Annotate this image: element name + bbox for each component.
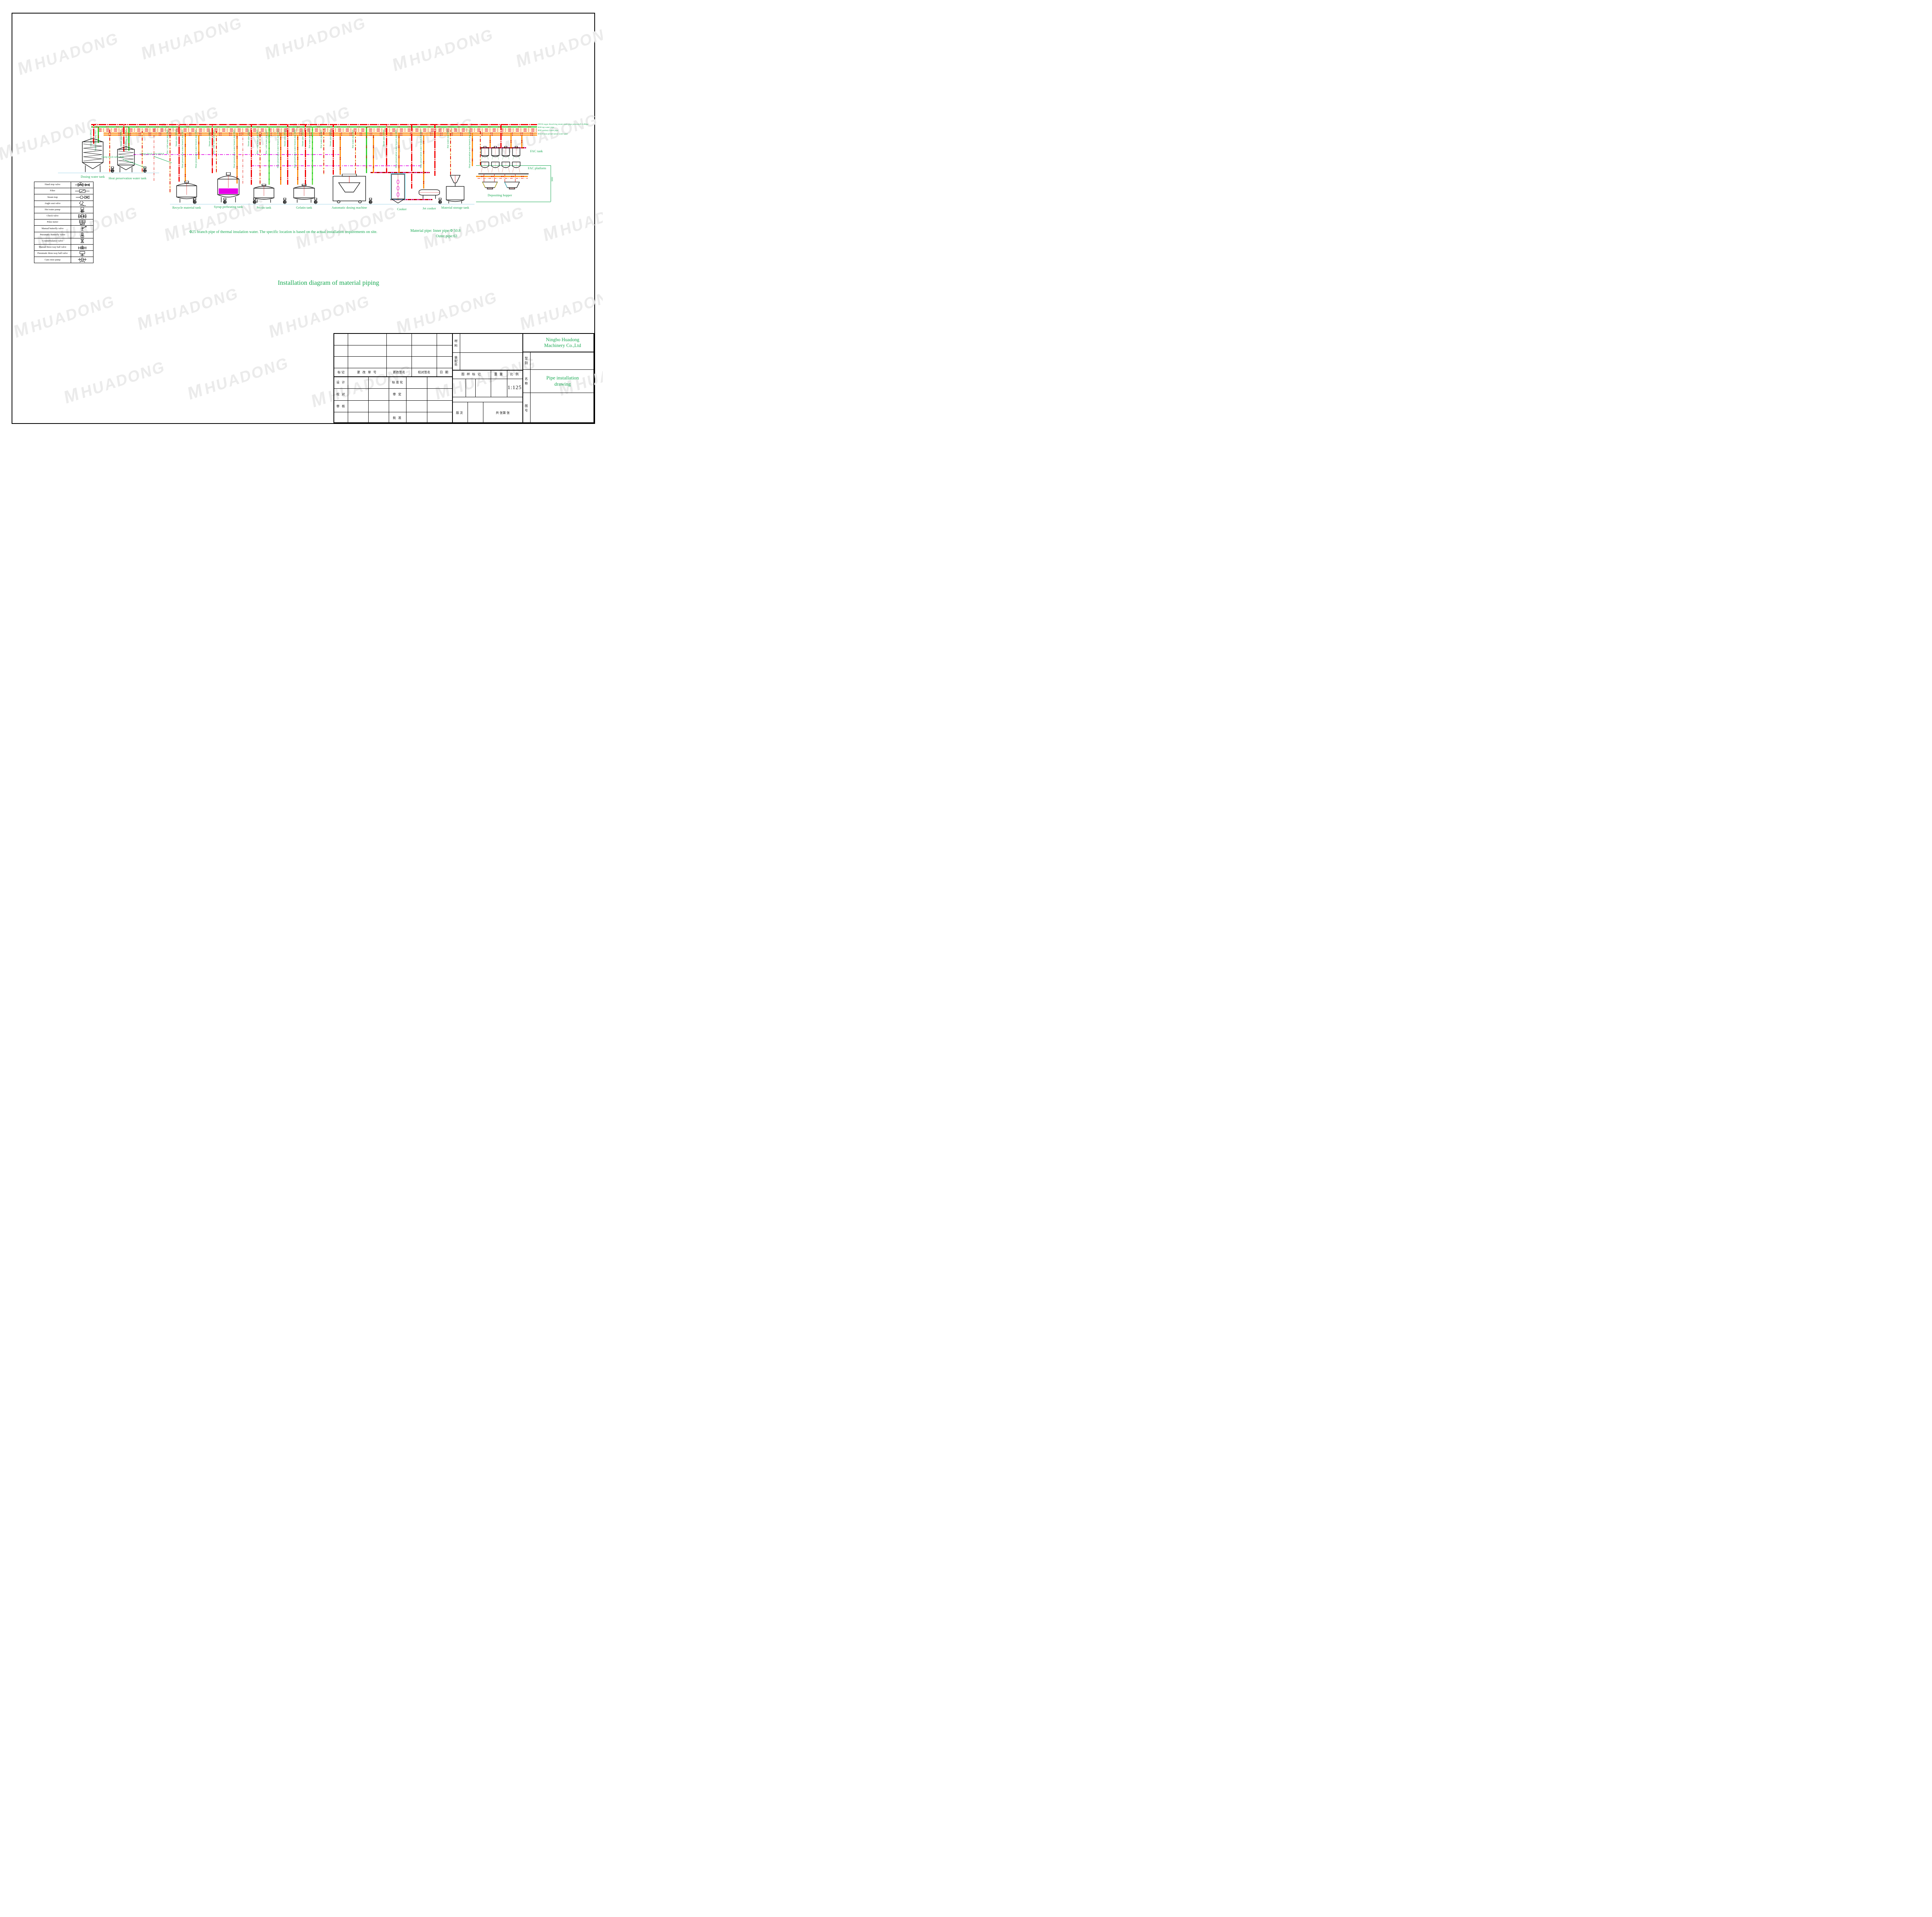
hot-water-pump-icon [71, 207, 93, 213]
tb-line [522, 393, 595, 393]
pipe-orange-vertical [510, 133, 512, 148]
pneumatic-butterfly-valve-icon [71, 232, 93, 238]
pipe-ltgreen-vertical [312, 127, 313, 185]
legend-row: Pneumatic three-way ball valve [34, 251, 93, 257]
manual-butterfly-valve-icon [71, 226, 93, 231]
pipe-yellow-vertical [355, 131, 356, 175]
cooker-label: Cooker [397, 207, 406, 211]
tb-weight: 重 量 [491, 370, 507, 379]
tb-material: 材 料 [452, 334, 460, 352]
tb-drawing-name-line2: drawing [554, 381, 571, 387]
legend-row: Pulse meter [34, 219, 93, 226]
pipe-red-vertical [434, 124, 435, 176]
pump-9-glyph [437, 198, 443, 204]
pump-5 [252, 198, 257, 204]
pump-1-glyph [110, 167, 115, 173]
material-pipe-note-2: Outer pipe:63 [436, 234, 457, 238]
pipe-orange-vertical [472, 133, 473, 166]
fac-bowl-2-glyph [491, 162, 500, 173]
tb-mark: 标 记 [334, 368, 348, 376]
main-pipe-labels: DN50 sugar dissolving steam main pipe pr… [538, 123, 588, 136]
tb-change-sign: 更改签名 [386, 368, 412, 376]
pipe-yellow-vertical [260, 131, 260, 185]
pipe-yellow [97, 129, 537, 129]
pump-6-glyph [282, 198, 287, 204]
pump-1 [110, 167, 115, 173]
drawing-sheet: MHUADONGMHUADONGMHUADONGMHUADONGMHUADONG… [0, 0, 603, 427]
pneumatic-three-way-ball-valve-icon [74, 251, 91, 256]
huadong-logo-icon: M [267, 317, 286, 342]
legend-row: Check valve [34, 213, 93, 219]
fac-tank-1-glyph [480, 146, 490, 160]
pump-7-glyph [313, 198, 318, 204]
pneumatic-three-way-ball-valve-icon [71, 251, 93, 257]
pipe-orange-vertical [423, 135, 424, 189]
fac-bowl-1-glyph [480, 162, 490, 173]
counterbalance-valve-icon [71, 238, 93, 244]
legend-row: Counterbalance valve [34, 238, 93, 245]
pipe-orange-vertical [340, 133, 341, 175]
tb-change-no: 更 改 单 号 [348, 368, 386, 376]
pipe-orange-vertical [398, 133, 400, 173]
tb-line [460, 334, 460, 370]
pipe-greenline-vertical [551, 165, 551, 202]
check-valve-icon [71, 213, 93, 219]
pump-3 [192, 198, 197, 204]
huadong-logo-icon: M [542, 221, 560, 245]
pipe-reddash-vertical [515, 174, 515, 182]
huadong-logo-icon: M [391, 51, 410, 75]
pipe-reddash-vertical [484, 174, 484, 182]
hot-water-pump-icon [74, 208, 91, 213]
vertical-pipe-label: Heat preservation water branch pipe Φ25 [294, 130, 297, 168]
pectin-tank-label: Pectin tank [257, 206, 271, 209]
vertical-pipe-label: Hot water pipe Φ25 [309, 130, 311, 148]
legend-row: Manual three-way ball valve [34, 245, 93, 251]
cooker-glyph [387, 172, 409, 204]
legend-label: Pneumatic Butterfly Valve [34, 232, 71, 238]
steam-trap-icon [71, 194, 93, 200]
pipe-green-vertical [366, 127, 367, 173]
pipe-yellow-vertical [170, 129, 170, 193]
vertical-pipe-label: Hot / cold water pipe Φ25 [257, 130, 259, 154]
angle-seat-valve-icon [74, 201, 91, 206]
legend-label: Check valve [34, 213, 71, 219]
pipe-red-vertical [251, 124, 252, 185]
tb-line [522, 352, 595, 352]
vertical-pipe-label: Hot / cold water pipe Φ25 [265, 130, 268, 154]
pipe-orange-vertical [198, 135, 199, 159]
main-pipe-label: Φ38 tap water pipe [538, 126, 588, 129]
vertical-pipe-label: Steam pipe DN20 [248, 130, 250, 146]
huadong-logo-icon: M [16, 54, 35, 79]
tb-date: 日 期 [437, 368, 452, 376]
legend-label: Steam trap [34, 194, 71, 200]
legend-label: Counterbalance valve [34, 238, 71, 244]
tb-line [468, 402, 468, 424]
dosing-water-tank-label: Dosing water tank [81, 175, 105, 179]
tb-review: 审 核 [334, 400, 348, 412]
filter-icon [71, 188, 93, 194]
pipe-red-vertical [287, 124, 288, 185]
fac-tank-3-glyph [501, 146, 510, 160]
pipe-ltgreen-vertical [269, 127, 270, 185]
legend-row: Cam rotor pump [34, 257, 93, 263]
fac-tank-label: FAC tank [530, 149, 543, 153]
tb-line [334, 400, 452, 401]
fac-tank-2 [491, 146, 500, 160]
vertical-pipe-label: Hot / cold water pipe Φ25 [167, 130, 169, 154]
legend-label: Pulse meter [34, 219, 71, 225]
depositing-hopper-label: Depositing hopper [488, 193, 512, 197]
pipe-orange-vertical [280, 133, 281, 185]
pump-3-glyph [192, 198, 197, 204]
pipe-orange-vertical [373, 135, 374, 173]
material-pipe-note-1: Material pipe: Inner pipe:Φ 50.8 [410, 229, 461, 233]
huadong-logo-icon: M [140, 39, 158, 64]
main-pipe-label: DN50 sugar dissolving steam main pipe pr… [538, 123, 588, 126]
clamp-check-valve-38-label: Clamp check valve Φ38 [101, 156, 124, 158]
pipe-orange-vertical [185, 133, 186, 182]
pipe-yellow-vertical [216, 131, 217, 173]
fac-tank-2-glyph [491, 146, 500, 160]
fac-bowl-2 [491, 162, 500, 173]
tb-assembly: 装配处 [452, 352, 460, 370]
heat-preservation-water-tank-label: Heat preservation water tank [109, 176, 146, 180]
pipe-reddash [478, 178, 528, 179]
pipe-orange-vertical [521, 135, 522, 148]
legend-row: Hot water pump [34, 207, 93, 213]
huadong-logo-icon: M [372, 139, 390, 164]
fac-platform-label: FAC platform [528, 166, 546, 170]
automatic-dosing-machine-label: Automatic dosing machine [332, 206, 367, 209]
syrup-preheating-tank-glyph [216, 172, 241, 203]
material-storage-tank-label: Material storage tank [441, 206, 469, 209]
pipe-floor [170, 204, 474, 204]
legend-label: Pneumatic three-way ball valve [34, 251, 71, 257]
pump-8-glyph [368, 198, 373, 204]
legend-table: Hand stop valveFilterSteam trapAngle sea… [34, 182, 94, 263]
fac-tank-1 [480, 146, 490, 160]
tb-model: 型 别 [522, 352, 530, 369]
syrup-preheating-tank-label: Syrup preheating tank [214, 205, 243, 209]
legend-row: Filter [34, 188, 93, 194]
pipe-red-vertical [179, 124, 180, 182]
pipe-greenline [476, 202, 551, 202]
hand-stop-valve-icon [71, 182, 93, 188]
legend-label: Filter [34, 188, 71, 194]
vertical-pipe-label: Steam pipe DN25 [284, 130, 287, 146]
tb-line [406, 376, 406, 424]
huadong-logo-icon: M [519, 310, 537, 334]
tb-standardization: 标 准 化 [389, 376, 406, 388]
title-block: 标 记 更 改 单 号 更改签名 校对签名 日 期 设 计 校 对 审 核 标 … [333, 333, 594, 423]
huadong-logo-icon: M [136, 310, 155, 334]
manual-three-way-ball-valve-icon [74, 245, 91, 250]
hand-stop-valve-icon [74, 182, 91, 187]
tb-design: 设 计 [334, 376, 348, 388]
pipe-black [478, 173, 529, 174]
tb-drawing-name: Pipe installation drawing [530, 369, 595, 393]
manual-three-way-ball-valve-icon [71, 245, 93, 250]
tb-line [334, 356, 452, 357]
legend-row: Hand stop valve [34, 182, 93, 188]
cam-rotor-pump-icon [71, 257, 93, 263]
pump-9 [437, 198, 443, 204]
vertical-pipe-label: Hot / cold water pipe Φ25 [213, 130, 216, 154]
manual-butterfly-valve-icon [74, 226, 91, 231]
huadong-logo-icon: M [310, 387, 328, 412]
pulse-meter-icon [71, 219, 93, 225]
main-pipe-label: Φ50.8 heat preservation water pipe [538, 133, 588, 136]
heat-preservation-water-tank [116, 146, 136, 173]
huadong-logo-icon: M [186, 379, 205, 404]
pulse-meter-icon [74, 220, 91, 225]
pipe-yellow-vertical [450, 129, 451, 176]
depositing-hopper-1-glyph [481, 182, 498, 192]
tb-line [427, 376, 427, 424]
tb-line [452, 397, 522, 397]
angle-seat-valve-icon [71, 201, 93, 207]
huadong-logo-icon: M [63, 383, 81, 408]
tb-line [452, 352, 522, 353]
vertical-pipe-label: Steam pipe DN25 [209, 130, 211, 146]
automatic-dosing-machine [332, 174, 367, 203]
huadong-logo-icon: M [515, 47, 533, 71]
fac-bowl-4 [512, 162, 521, 173]
tb-line [466, 379, 466, 397]
main-pipe-label: Φ38 sanitary water pipe [538, 129, 588, 132]
vertical-pipe-label: Hot water pipe Φ25 [320, 130, 323, 148]
pipe-reddash-vertical [243, 129, 243, 184]
branch-pipe-note: Φ25 branch pipe of thermal insulation wa… [189, 230, 377, 234]
vertical-pipe-label: Steam pipe DN40 [383, 130, 386, 146]
tb-line [368, 376, 369, 424]
tb-edition: 版次 [452, 402, 468, 424]
pneumatic-butterfly-valve-icon [74, 233, 91, 238]
pump-5-glyph [252, 198, 257, 204]
counterbalance-valve-icon [74, 239, 91, 244]
tb-approve: 批 准 [389, 412, 406, 424]
check-valve-icon [74, 214, 91, 219]
huadong-logo-icon: M [264, 39, 282, 64]
tb-proof: 校 对 [334, 388, 348, 400]
tb-drawing-mark: 图 样 标 记 [452, 370, 491, 379]
fac-tank-3 [501, 146, 510, 160]
heat-preservation-water-tank-glyph [116, 146, 136, 173]
vertical-pipe-label: Heat preservation water branch pipe Φ25 [195, 130, 198, 168]
vertical-pipe-label: Heat preservation water branch pipe Φ25 [233, 130, 236, 168]
drawing-title: Installation diagram of material piping [270, 279, 386, 287]
tb-sheets: 共 张第 张 [483, 402, 522, 424]
vertical-pipe-label: Heat preservation water branch pipe Φ25 [182, 130, 184, 168]
legend-label: Hot water pump [34, 207, 71, 213]
material-storage-tank-glyph [443, 175, 468, 204]
vertical-pipe-label: Steam pipe DN25 [120, 130, 123, 146]
gelatin-tank-label: Gelatin tank [296, 206, 312, 209]
huadong-logo-icon: M [12, 317, 31, 342]
steam-trap-icon [74, 195, 91, 200]
tb-line [348, 376, 348, 424]
tb-line [334, 345, 452, 345]
tb-check-sign: 校对签名 [412, 368, 437, 376]
fac-bowl-3-glyph [501, 162, 510, 173]
recycle-material-tank-label: Recycle material tank [172, 206, 201, 209]
pipe-red-vertical [411, 124, 412, 189]
pump-7 [313, 198, 318, 204]
pump-4-glyph [222, 198, 228, 204]
pipe-orange-vertical [297, 135, 298, 185]
tb-scale-value: 1:125 [507, 379, 522, 397]
dosing-water-tank-glyph [80, 138, 105, 173]
legend-row: Steam trap [34, 194, 93, 201]
material-storage-tank [443, 175, 468, 204]
pipe-red-vertical [333, 124, 334, 175]
fac-bowl-4-glyph [512, 162, 521, 173]
syrup-preheating-tank [216, 172, 241, 203]
pump-4 [222, 198, 228, 204]
fac-bowl-1 [480, 162, 490, 173]
tb-drawing-name-line1: Pipe installation [546, 375, 579, 381]
dosing-water-tank [80, 138, 105, 173]
vertical-pipe-label: Heat preservation water branch pipe Φ25 [420, 130, 423, 168]
tb-company-line2: Machinery Co.,Ltd [544, 343, 581, 349]
fac-bowl-3 [501, 162, 510, 173]
dimension-3000: 3000 [551, 177, 554, 182]
tb-company: Ningbo Huadong Machinery Co.,Ltd [530, 334, 595, 352]
tb-approve-check: 审 定 [389, 388, 406, 400]
legend-label: Angle seat valve [34, 201, 71, 207]
vertical-pipe-label: Hot water pipe Φ25 [447, 130, 450, 148]
tb-drawing-no: 图 号 [522, 393, 530, 424]
pipe-reddash-vertical [494, 174, 495, 182]
pipe-red-vertical [500, 124, 502, 148]
legend-row: Angle seat valve [34, 201, 93, 207]
pipe-reddash-vertical [505, 174, 505, 182]
vertical-pipe-label: Steam pipe DN25 [175, 130, 178, 146]
legend-label: Manual three-way ball valve [34, 245, 71, 250]
legend-label: Hand stop valve [34, 182, 71, 188]
cam-rotor-pump-icon [74, 257, 91, 262]
clamp-check-valve-508-label: Clamp check valve Φ50.8 [140, 153, 164, 155]
pipe-red-vertical [305, 124, 306, 185]
legend-label: Manual butterfly valve [34, 226, 71, 231]
huadong-logo-icon: M [163, 221, 182, 245]
depositing-hopper-2 [503, 182, 520, 192]
tb-name: 名 称 [522, 369, 530, 393]
jet-cooker-label: Jet cooker [423, 206, 436, 210]
pump-6 [282, 198, 287, 204]
legend-row: Manual butterfly valve [34, 226, 93, 232]
vertical-pipe-label: Steam pipe DN25 [302, 130, 304, 146]
pipe-red-vertical [386, 124, 387, 173]
depositing-hopper-2-glyph [503, 182, 520, 192]
tb-scale-label: 比 例 [507, 370, 522, 379]
legend-label: Cam rotor pump [34, 257, 71, 263]
pump-8 [368, 198, 373, 204]
filter-icon [74, 189, 91, 194]
tb-line [475, 379, 476, 397]
pipe-red [91, 124, 537, 125]
vertical-pipe-label: Steam pipe DN25 [330, 130, 332, 146]
depositing-hopper-1 [481, 182, 498, 192]
fac-tank-4-glyph [512, 146, 521, 160]
cooker [387, 172, 409, 204]
fac-tank-4 [512, 146, 521, 160]
vertical-pipe-label: Hot water pipe Φ25 [352, 130, 355, 148]
pipe-yellow-vertical [323, 129, 324, 175]
vertical-pipe-label: Heat preservation water branch pipe Φ25 [469, 130, 471, 168]
legend-row: Pneumatic Butterfly Valve [34, 232, 93, 238]
tb-company-line1: Ningbo Huadong [546, 337, 579, 343]
automatic-dosing-machine-glyph [332, 174, 367, 203]
pipe-green [91, 126, 537, 128]
vertical-pipe-label: Heat preservation water branch pipe Φ25 [277, 130, 280, 168]
vertical-pipe-label: Heat preservation water branch pipe Φ25 [395, 130, 398, 168]
